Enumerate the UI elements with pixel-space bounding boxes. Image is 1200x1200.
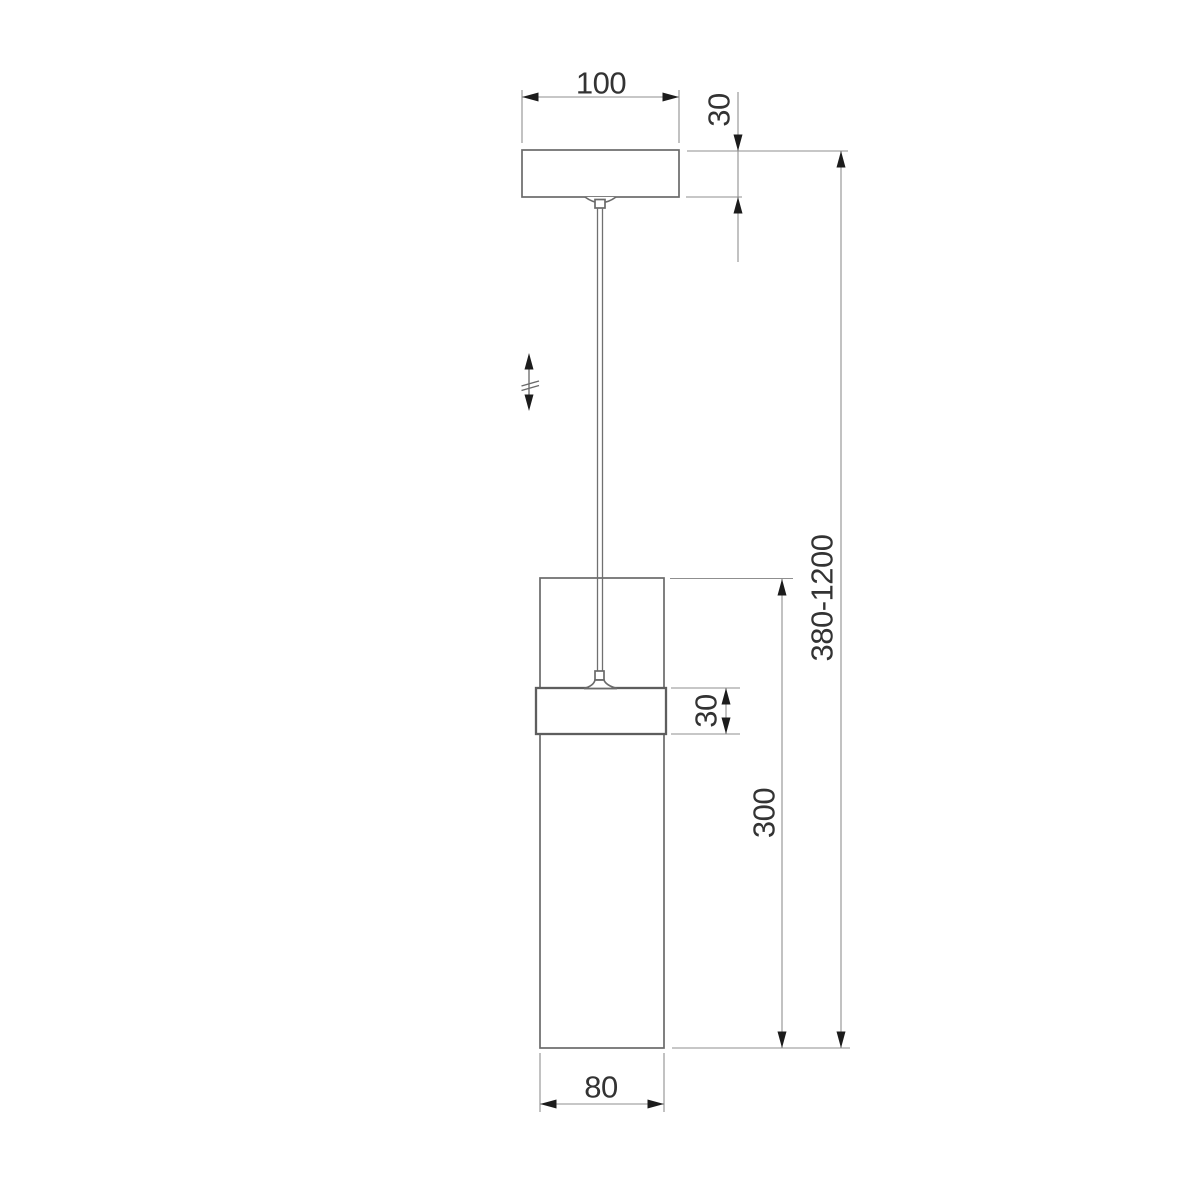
cord-grip [595, 200, 605, 209]
cord-dome [584, 680, 617, 689]
adjust-arrow-down [525, 395, 534, 412]
dim-label-band-height: 30 [689, 694, 724, 728]
cord-ferrule [595, 671, 604, 680]
canopy [522, 150, 679, 197]
dim-label-canopy-height: 30 [702, 93, 737, 127]
dim-shade-height: 300 [670, 579, 793, 1049]
suspension-cord [598, 208, 603, 672]
lamp-object [522, 150, 679, 1048]
dim-label-shade-diameter: 80 [584, 1070, 618, 1105]
dim-overall-height: 380-1200 [672, 151, 850, 1048]
dim-label-overall-height: 380-1200 [805, 534, 840, 661]
dim-canopy-width: 100 [522, 66, 679, 144]
dim-band-height: 30 [671, 688, 740, 734]
adjust-arrow-up [525, 353, 534, 370]
height-adjust-icon [522, 353, 540, 411]
mounting-band [536, 688, 666, 734]
adjust-break-slashes [522, 381, 540, 391]
dim-shade-diameter: 80 [540, 1053, 664, 1112]
dim-label-canopy-width: 100 [576, 66, 626, 101]
dim-canopy-height: 30 [686, 92, 848, 262]
pendant-lamp-dimension-drawing: 100 30 380-1200 300 [0, 0, 1200, 1200]
drawing-canvas: 100 30 380-1200 300 [0, 0, 1200, 1200]
dim-label-shade-height: 300 [747, 788, 782, 838]
